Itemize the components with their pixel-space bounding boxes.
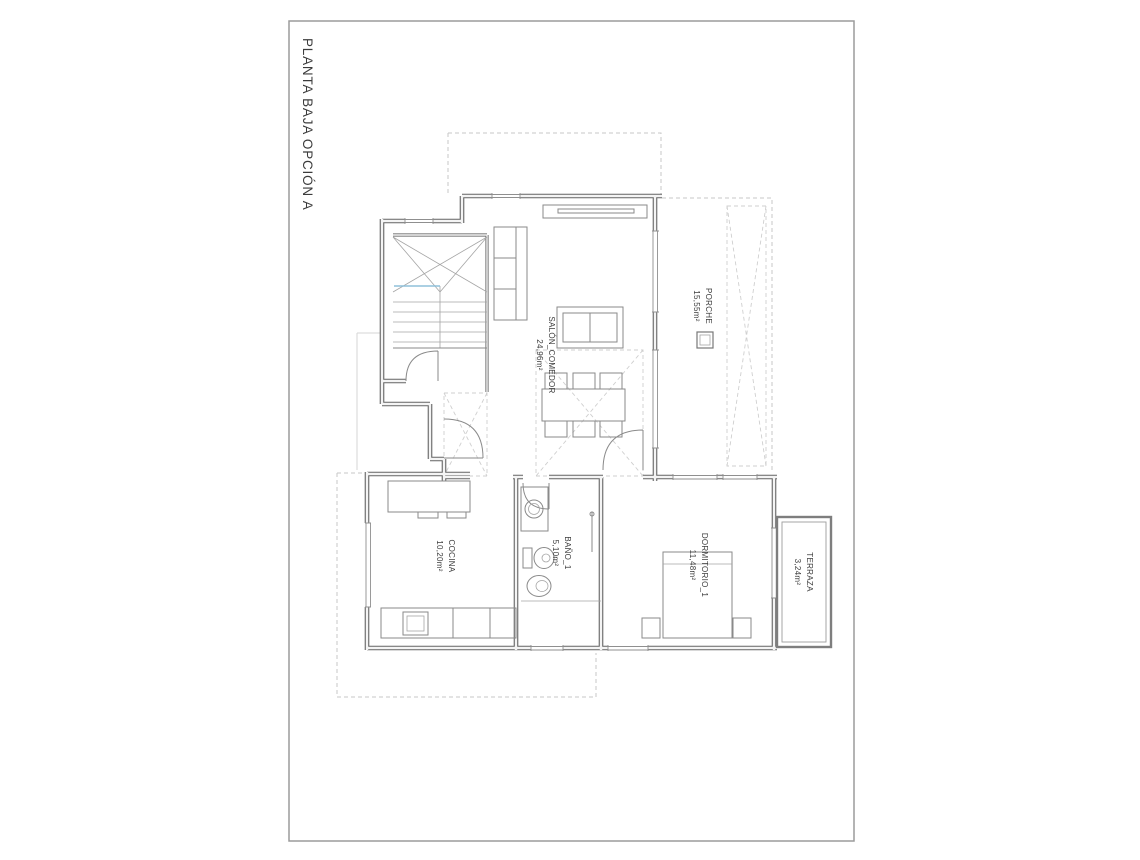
room-name: PORCHE <box>704 288 713 324</box>
room-area: 5,10m² <box>551 540 560 567</box>
room-area: 24,96m² <box>535 339 544 370</box>
room-name: COCINA <box>447 540 456 573</box>
plan-title: PLANTA BAJA OPCIÓN A <box>300 38 315 211</box>
room-name: BAÑO_1 <box>563 536 572 570</box>
room-name: TERRAZA <box>805 552 814 592</box>
room-name: DORMITORIO_1 <box>700 533 709 598</box>
paper-sheet <box>289 21 854 841</box>
room-area: 3,24m² <box>793 559 802 586</box>
room-area: 15,55m² <box>692 290 701 321</box>
room-area: 10,20m² <box>435 540 444 571</box>
terrace <box>777 517 831 647</box>
room-area: 11,48m² <box>688 550 697 581</box>
floor-plan-page: PLANTA BAJA OPCIÓN A <box>0 0 1140 860</box>
room-name: SALÓN_COMEDOR <box>547 316 556 393</box>
